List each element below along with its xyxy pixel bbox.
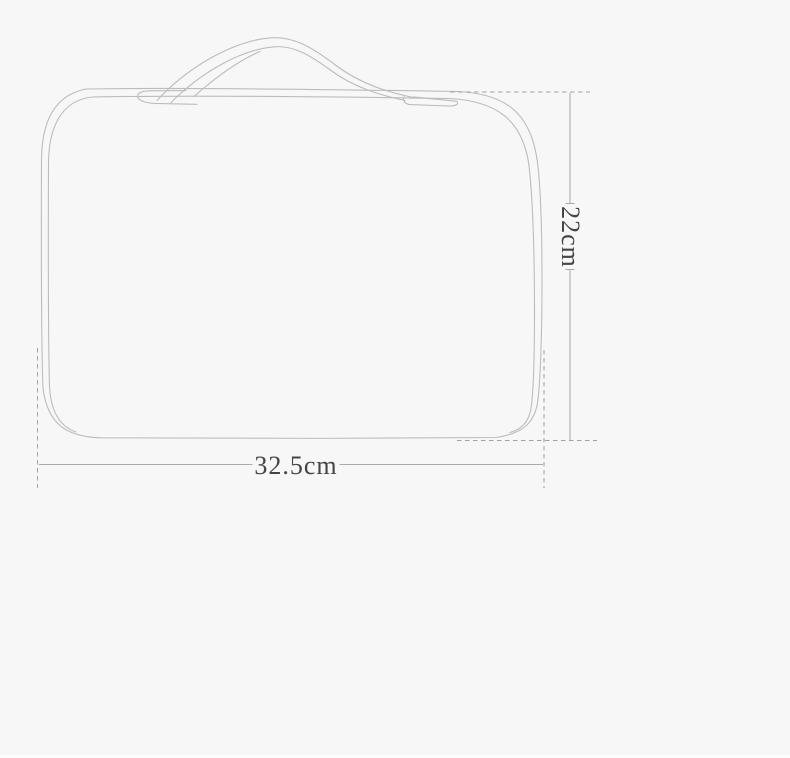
bag-line-drawing	[0, 0, 790, 758]
handle-left-tab	[138, 91, 197, 105]
height-dimension-label: 22cm	[557, 206, 583, 268]
handle-strap-fold-line	[194, 52, 260, 97]
width-dimension-label: 32.5cm	[254, 453, 337, 479]
bag-outline-icon	[41, 88, 542, 438]
product-dimension-diagram: 22cm 32.5cm	[0, 0, 790, 758]
bag-seam-line	[48, 96, 534, 432]
bag-outer-outline	[41, 88, 542, 438]
handle-strap-inner-line	[171, 47, 405, 103]
